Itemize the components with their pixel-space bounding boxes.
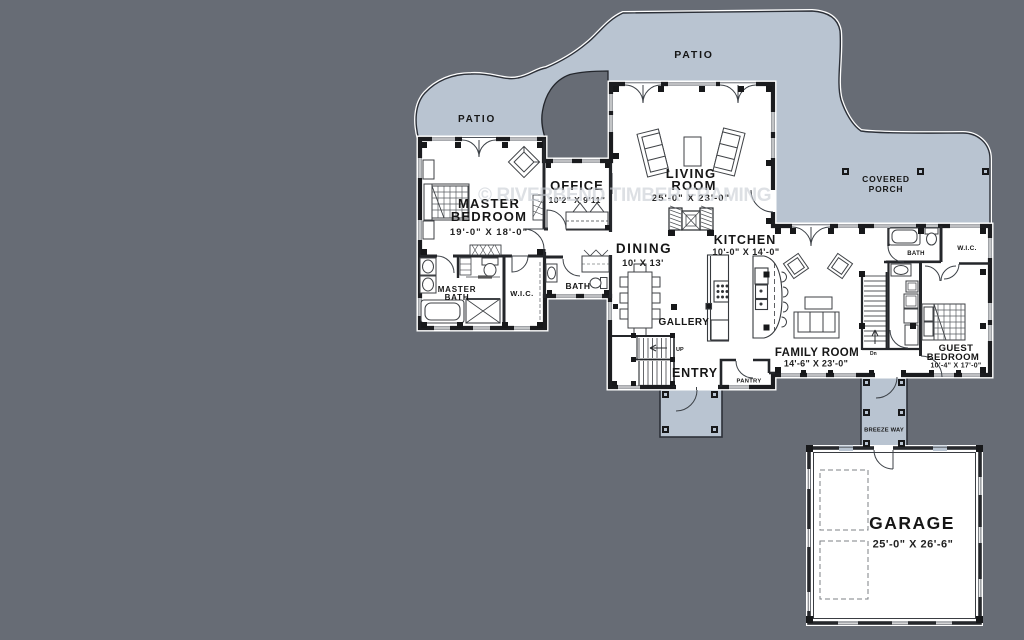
svg-text:25'-0" X 26'-6": 25'-0" X 26'-6" — [873, 539, 954, 551]
svg-text:PANTRY: PANTRY — [737, 379, 762, 385]
svg-text:14'-6" X 23'-0": 14'-6" X 23'-0" — [784, 359, 848, 369]
svg-text:W.I.C.: W.I.C. — [957, 245, 977, 252]
svg-text:GARAGE: GARAGE — [869, 513, 955, 533]
svg-text:BATH: BATH — [445, 293, 470, 302]
svg-text:19'-0" X 18'-0": 19'-0" X 18'-0" — [450, 227, 528, 238]
svg-text:BEDROOM: BEDROOM — [451, 209, 527, 224]
svg-text:GALLERY: GALLERY — [659, 317, 710, 328]
svg-text:FAMILY ROOM: FAMILY ROOM — [775, 347, 859, 359]
svg-text:10'-4" X 17'-0": 10'-4" X 17'-0" — [930, 363, 981, 370]
svg-text:BATH: BATH — [907, 251, 924, 257]
svg-text:© RIVERBEND TIMBER FRAMING: © RIVERBEND TIMBER FRAMING — [478, 185, 774, 206]
svg-text:BATH: BATH — [566, 281, 591, 291]
svg-text:10' X 13': 10' X 13' — [622, 258, 664, 269]
svg-text:ENTRY: ENTRY — [672, 366, 718, 380]
svg-text:Dn: Dn — [870, 351, 877, 357]
svg-text:KITCHEN: KITCHEN — [714, 233, 777, 247]
svg-text:COVERED: COVERED — [862, 174, 910, 184]
svg-text:PATIO: PATIO — [458, 114, 496, 125]
svg-text:10'-0" X 14'-0": 10'-0" X 14'-0" — [712, 247, 779, 257]
svg-text:UP: UP — [676, 347, 684, 353]
svg-text:W.I.C.: W.I.C. — [510, 289, 533, 298]
svg-text:DINING: DINING — [616, 241, 672, 256]
svg-text:BEDROOM: BEDROOM — [927, 352, 979, 363]
svg-text:BREEZE WAY: BREEZE WAY — [864, 428, 904, 434]
svg-text:PORCH: PORCH — [869, 184, 904, 194]
svg-text:PATIO: PATIO — [674, 49, 714, 61]
